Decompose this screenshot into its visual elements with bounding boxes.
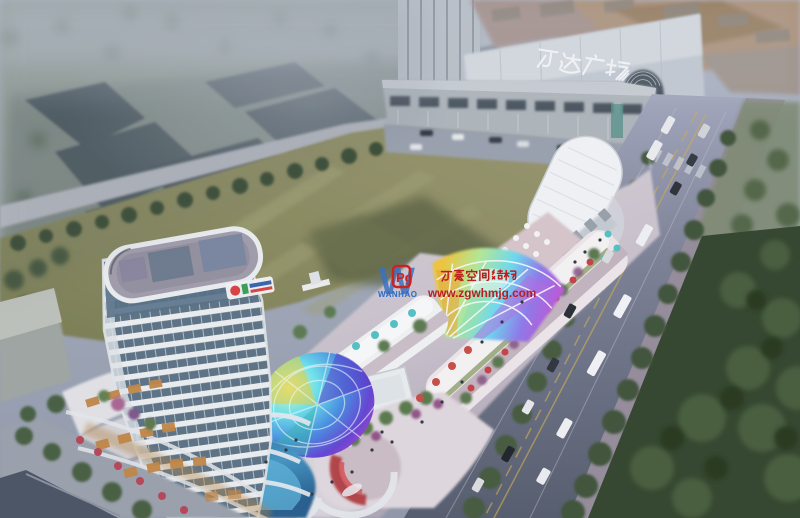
svg-text:WANHAO: WANHAO [378,290,417,299]
svg-text:Pg: Pg [396,270,413,285]
svg-text:www.zgwhmjg.com: www.zgwhmjg.com [427,286,536,300]
